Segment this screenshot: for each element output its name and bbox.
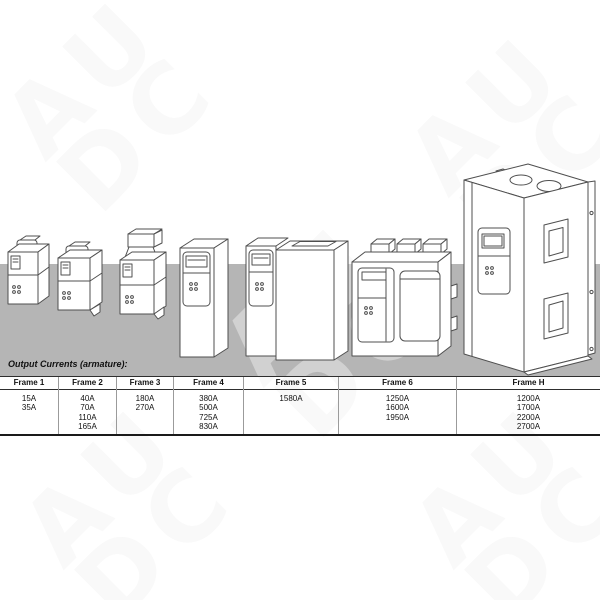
watermark-tile: AU DC (0, 0, 229, 221)
table-column-header: Frame H (457, 377, 600, 390)
current-value: 1580A (244, 394, 338, 403)
current-value: 180A (117, 394, 173, 403)
current-value: 1700A (457, 403, 600, 412)
current-value: 1200A (457, 394, 600, 403)
current-value: 380A (174, 394, 243, 403)
table-column-header: Frame 4 (174, 377, 243, 390)
current-value: 830A (174, 422, 243, 431)
table-column-values: 180A270A (117, 390, 173, 433)
current-value: 2200A (457, 413, 600, 422)
current-value: 35A (0, 403, 58, 412)
table-column-values: 1250A1600A1950A (339, 390, 456, 433)
table-column-header: Frame 3 (117, 377, 173, 390)
table-column-values: 1200A1700A2200A2700A (457, 390, 600, 434)
table-column: Frame 3180A270A (117, 377, 174, 434)
table-column: Frame 115A35A (0, 377, 59, 434)
table-column-header: Frame 6 (339, 377, 456, 390)
frame-table: Frame 115A35AFrame 240A70A110A165AFrame … (0, 376, 600, 436)
current-value: 500A (174, 403, 243, 412)
watermark-tile: AU DC (0, 0, 229, 221)
page: Output Currents (armature): Frame 115A35… (0, 0, 600, 600)
table-column-values: 15A35A (0, 390, 58, 433)
current-value: 270A (117, 403, 173, 412)
current-value: 2700A (457, 422, 600, 431)
current-value: 70A (59, 403, 116, 412)
current-value: 165A (59, 422, 116, 431)
table-column: Frame 4380A500A725A830A (174, 377, 244, 434)
table-column-values: 40A70A110A165A (59, 390, 116, 434)
watermark-tile: AU DC (398, 23, 600, 258)
table-column: Frame 61250A1600A1950A (339, 377, 457, 434)
current-value: 725A (174, 413, 243, 422)
output-currents-caption: Output Currents (armature): (8, 359, 128, 369)
table-column-header: Frame 5 (244, 377, 338, 390)
table-column-header: Frame 1 (0, 377, 58, 390)
table-column: Frame H1200A1700A2200A2700A (457, 377, 600, 434)
table-column: Frame 51580A (244, 377, 339, 434)
current-value: 1950A (339, 413, 456, 422)
table-column: Frame 240A70A110A165A (59, 377, 117, 434)
current-value: 15A (0, 394, 58, 403)
current-value: 40A (59, 394, 116, 403)
current-value: 1600A (339, 403, 456, 412)
table-column-values: 380A500A725A830A (174, 390, 243, 434)
table-column-header: Frame 2 (59, 377, 116, 390)
current-value: 110A (59, 413, 116, 422)
watermark-tile: AU DC (398, 23, 600, 258)
current-value: 1250A (339, 394, 456, 403)
table-column-values: 1580A (244, 390, 338, 433)
